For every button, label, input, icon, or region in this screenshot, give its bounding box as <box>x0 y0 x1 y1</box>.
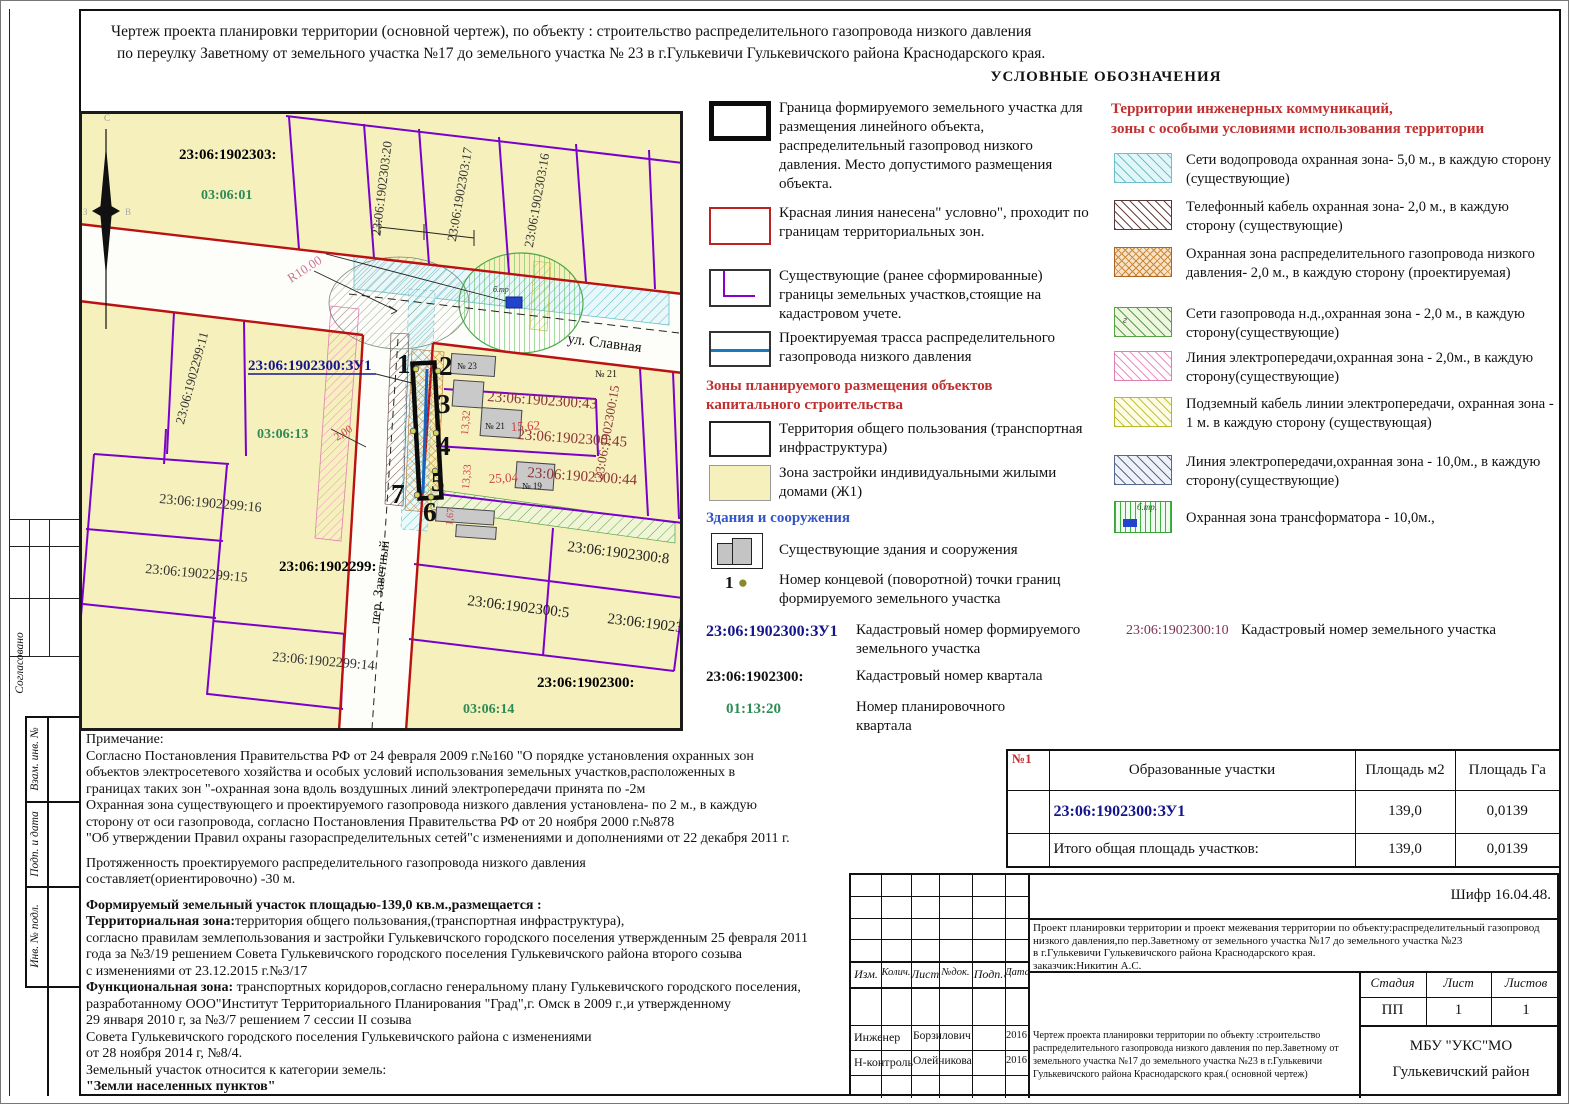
cad-formed-code: 23:06:1902300:ЗУ1 <box>706 623 838 641</box>
note-line: объектов электросетевого хозяйства и осо… <box>86 765 1026 782</box>
sheet-title-line2: по переулку Заветному от земельного учас… <box>117 45 1045 63</box>
note-line: "Об утверждении Правил охраны газораспре… <box>86 831 1026 848</box>
swatch-projected-gas <box>709 331 771 367</box>
listov-header: Листов <box>1491 975 1561 991</box>
svg-text:03:06:01: 03:06:01 <box>201 188 252 203</box>
note-line: Охранная зона существующего и проектируе… <box>86 798 1026 815</box>
svg-text:№ 21: № 21 <box>595 369 617 380</box>
total-m2-cell: 139,0 <box>1355 833 1455 867</box>
communications-heading2: зоны с особыми условиями использования т… <box>1111 121 1484 138</box>
listov-value: 1 <box>1491 1002 1561 1019</box>
cad-quarter-code: 23:06:1902300: <box>706 669 804 686</box>
note-line: Согласно Постановления Правительства РФ … <box>86 749 1026 766</box>
date-ncontrol: 2016 <box>1006 1055 1027 1066</box>
legend-item-text: Подземный кабель линии электропередачи, … <box>1186 395 1554 433</box>
table-row: 23:06:1902300:ЗУ1 139,0 0,0139 <box>1007 790 1560 833</box>
frame-label-inv: Инв. № подл. <box>29 882 43 990</box>
transformer-mark: б.тр. <box>1137 502 1157 512</box>
list-value: 1 <box>1426 1002 1491 1019</box>
note-line: сторону от оси газопровода, согласно Пос… <box>86 815 1026 832</box>
svg-text:23:06:1902299:: 23:06:1902299: <box>279 559 377 575</box>
building-icon <box>711 533 763 569</box>
legend-item-text: Граница формируемого земельного участка … <box>779 99 1097 194</box>
svg-text:5: 5 <box>431 467 445 497</box>
svg-text:В: В <box>125 207 131 217</box>
frame-label-soglasovano: Согласовано <box>14 609 28 717</box>
legend-item-text: Линия электропередачи,охранная зона - 2,… <box>1186 349 1554 387</box>
cad-plot-code: 23:06:1902300:10 <box>1126 623 1229 639</box>
swatch-cable <box>1114 397 1172 427</box>
svg-text:13,33: 13,33 <box>460 463 474 489</box>
legend-item-text: Существующие здания и сооружения <box>779 541 1097 560</box>
territory-plan-map: С З В 23:06:1902303: 03:06:01 23:06:1902… <box>79 111 683 731</box>
table-col-ga: Площадь Га <box>1455 750 1560 790</box>
svg-text:4: 4 <box>437 431 451 461</box>
svg-text:1: 1 <box>397 349 411 379</box>
notes-heading: Примечание: <box>86 732 1026 749</box>
swatch-transformer: б.тр. <box>1114 501 1172 533</box>
legend-item-text: Линия электропередачи,охранная зона - 10… <box>1186 453 1554 491</box>
note-line: границах таких зон "-охранная зона вдоль… <box>86 782 1026 799</box>
drawing-title-small: Чертеж проекта планировки территории по … <box>1033 1029 1355 1081</box>
col-kolich: Колич. <box>881 967 911 978</box>
swatch-common-territory <box>709 421 771 457</box>
cad-plot-text: Кадастровый номер земельного участка <box>1241 622 1496 639</box>
stage-value: ПП <box>1359 1002 1426 1019</box>
date-engineer: 2016 <box>1006 1030 1027 1041</box>
organization: МБУ "УКС"МО Гулькевичский район <box>1361 1033 1561 1085</box>
area-m2-cell: 139,0 <box>1355 790 1455 833</box>
drawing-sheet: Согласовано Взам. инв. № Подп. и дата Ин… <box>0 0 1569 1104</box>
svg-text:№ 21: № 21 <box>485 421 505 431</box>
table-row: Итого общая площадь участков: 139,0 0,01… <box>1007 833 1560 867</box>
communications-heading1: Территории инженерных коммуникаций, <box>1111 101 1393 118</box>
cad-formed-text: Кадастровый номер формируемого земельног… <box>856 621 1116 659</box>
legend-item-text: Охранная зона трансформатора - 10,0м., <box>1186 509 1554 528</box>
svg-text:1,67: 1,67 <box>444 508 456 526</box>
svg-text:23:06:1902300:: 23:06:1902300: <box>537 675 635 691</box>
legend-item-text: Зона застройки индивидуальными жилыми до… <box>779 464 1097 502</box>
swatch-red-line <box>709 207 771 245</box>
buildings-heading: Здания и сооружения <box>706 509 1036 528</box>
svg-text:25,04: 25,04 <box>488 469 518 486</box>
transformer-icon <box>506 297 522 308</box>
svg-text:7: 7 <box>391 479 405 509</box>
svg-text:6: 6 <box>423 497 437 527</box>
swatch-water <box>1114 153 1172 183</box>
legend-item-text: Сети газопровода н.д.,охранная зона - 2,… <box>1186 305 1554 343</box>
swatch-existing-boundaries <box>709 269 771 307</box>
project-name: Проект планировки территории и проект ме… <box>1033 922 1557 972</box>
table-col-num: №1 <box>1007 750 1049 790</box>
name-ncontrol: Олейникова <box>913 1055 972 1067</box>
svg-text:3: 3 <box>437 389 451 419</box>
zones-heading: Зоны планируемого размещения объектов ка… <box>706 377 1036 415</box>
plan-quarter-text: Номер планировочного квартала <box>856 698 1056 736</box>
parcel-code-cell: 23:06:1902300:ЗУ1 <box>1049 790 1355 833</box>
col-ndok: №док. <box>939 967 972 978</box>
swatch-gas-protect <box>1114 247 1172 277</box>
legend-title: УСЛОВНЫЕ ОБОЗНАЧЕНИЯ <box>941 69 1271 86</box>
note-line: Протяженность проектируемого распределит… <box>86 856 1026 873</box>
total-ga-cell: 0,0139 <box>1455 833 1560 867</box>
parcel-table: №1 Образованные участки Площадь м2 Площа… <box>1006 749 1561 868</box>
sheet-title-line1: Чертеж проекта планировки территории (ос… <box>111 23 1031 41</box>
swatch-lep10 <box>1114 455 1172 485</box>
swatch-gas-net: г <box>1114 307 1172 337</box>
svg-text:С: С <box>104 113 110 123</box>
table-col-name: Образованные участки <box>1049 750 1355 790</box>
legend-item-text: Охранная зона распределительного газопро… <box>1186 245 1554 283</box>
name-engineer: Борзилович <box>913 1030 971 1042</box>
svg-text:03:06:14: 03:06:14 <box>463 702 514 717</box>
list-header: Лист <box>1426 975 1491 991</box>
transformer-icon <box>1123 519 1137 527</box>
transformer-zone <box>459 253 583 353</box>
plan-quarter-code: 01:13:20 <box>726 701 781 718</box>
svg-text:№ 19: № 19 <box>522 481 542 491</box>
title-block: Изм. Колич. Лист №док. Подп. Дата Инжене… <box>849 873 1559 1096</box>
legend-item-text: Сети водопровода охранная зона- 5,0 м., … <box>1186 151 1554 189</box>
point-number-sample: 1 ● <box>725 573 748 593</box>
legend-item-text: Проектируемая трасса распределительного … <box>779 329 1097 367</box>
gas-mark: г <box>1123 315 1127 326</box>
col-data: Дата <box>1005 967 1028 978</box>
legend-item-text: Территория общего пользования (транспорт… <box>779 420 1097 458</box>
svg-text:13,32: 13,32 <box>459 410 473 436</box>
legend-item-text: Телефонный кабель охранная зона- 2,0 м.,… <box>1186 198 1554 236</box>
svg-text:23:06:1902303:: 23:06:1902303: <box>179 147 277 163</box>
total-label-cell: Итого общая площадь участков: <box>1049 833 1355 867</box>
table-col-m2: Площадь м2 <box>1355 750 1455 790</box>
swatch-formed-boundary <box>709 101 771 141</box>
legend-item-text: Номер концевой (поворотной) точки границ… <box>779 571 1097 609</box>
svg-text:15,62: 15,62 <box>510 417 540 434</box>
svg-text:03:06:13: 03:06:13 <box>257 427 308 442</box>
col-list: Лист <box>911 967 939 982</box>
col-podp: Подп. <box>972 967 1005 982</box>
svg-text:23:06:1902300:ЗУ1: 23:06:1902300:ЗУ1 <box>248 358 372 374</box>
legend-item-text: Существующие (ранее сформированные) гран… <box>779 267 1097 324</box>
role-engineer: Инженер <box>854 1030 900 1045</box>
swatch-residential-zone <box>709 465 771 501</box>
shifr: Шифр 16.04.48. <box>1351 887 1559 904</box>
svg-text:б.тр: б.тр <box>493 285 509 294</box>
col-izm: Изм. <box>851 967 881 982</box>
legend-item-text: Красная линия нанесена" условно", проход… <box>779 204 1097 242</box>
svg-text:2: 2 <box>439 351 453 381</box>
role-ncontrol: Н-контроль <box>854 1055 913 1070</box>
swatch-lep2 <box>1114 351 1172 381</box>
svg-text:№ 23: № 23 <box>457 361 477 371</box>
cad-quarter-text: Кадастровый номер квартала <box>856 668 1043 685</box>
svg-text:З: З <box>83 207 88 217</box>
stage-header: Стадия <box>1359 975 1426 991</box>
swatch-telephone <box>1114 200 1172 230</box>
area-ga-cell: 0,0139 <box>1455 790 1560 833</box>
